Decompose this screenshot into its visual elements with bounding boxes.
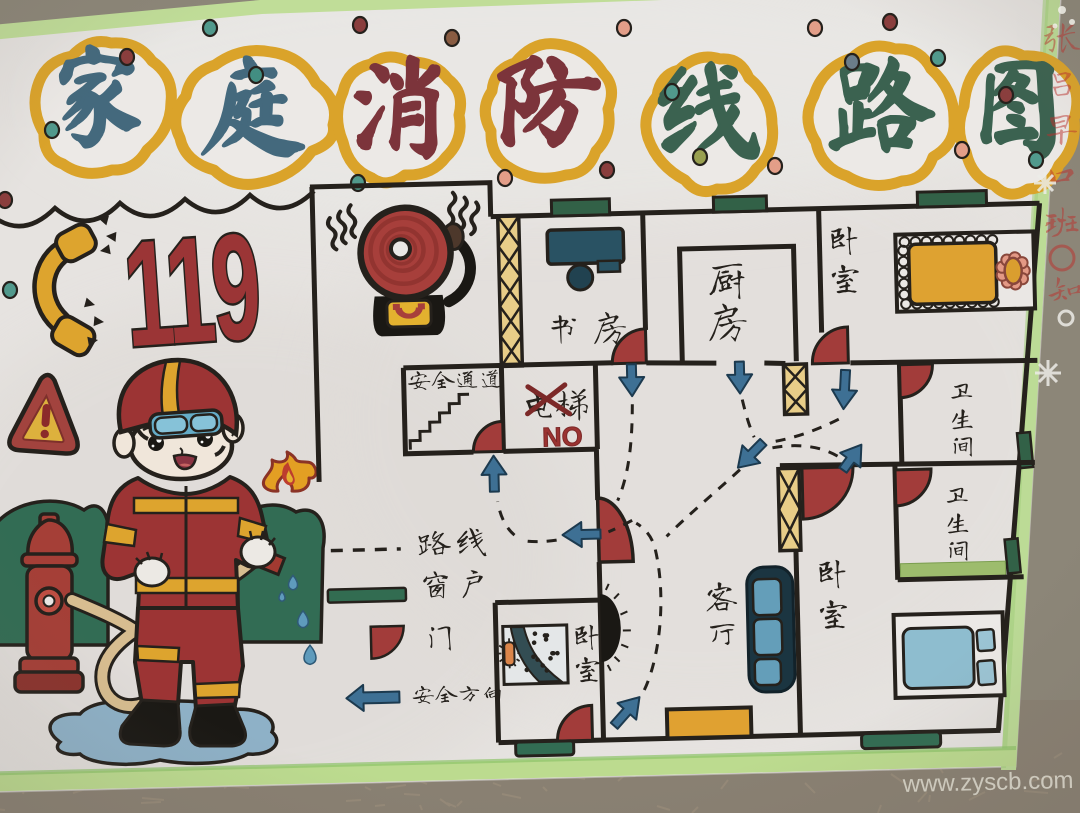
svg-text:www.zyscb.com: www.zyscb.com — [901, 767, 1073, 798]
